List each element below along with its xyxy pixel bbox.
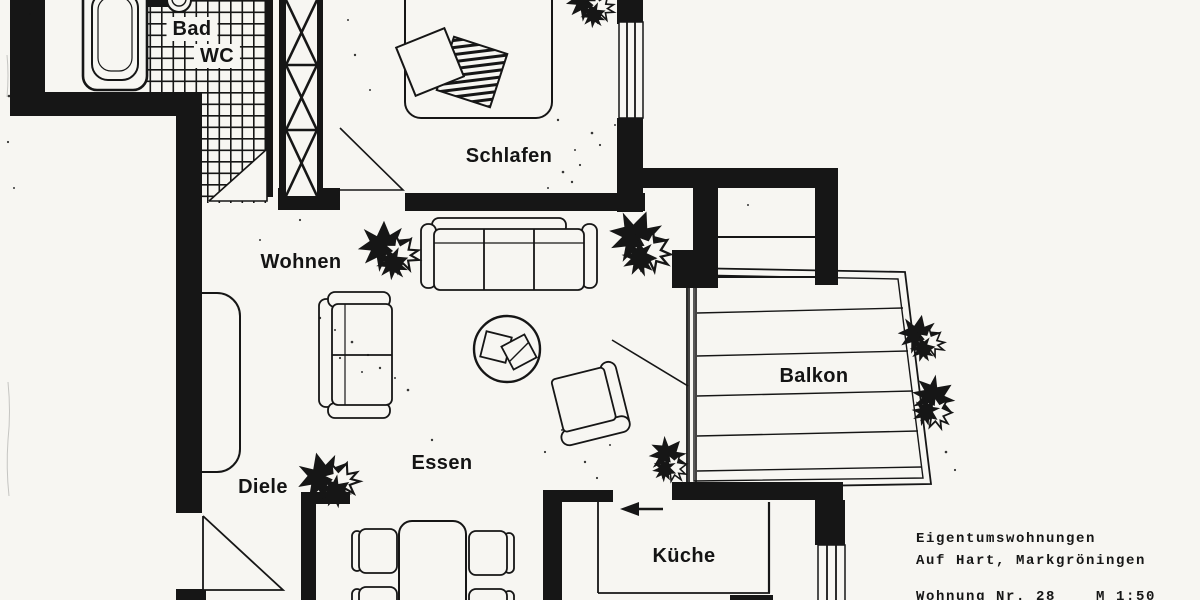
bed bbox=[396, 0, 552, 118]
dining-chair bbox=[352, 587, 397, 600]
room-label-diele: Diele bbox=[238, 477, 288, 497]
wall-essen-vertical bbox=[543, 490, 562, 600]
door-swing-schlafen bbox=[336, 128, 403, 190]
floor-plan-drawing bbox=[0, 0, 1200, 600]
wall-northeast bbox=[643, 168, 838, 188]
wall-diele-vertical bbox=[301, 492, 316, 600]
room-label-schlafen: Schlafen bbox=[466, 146, 553, 166]
storage-room bbox=[718, 237, 815, 277]
wall-schlafen-south bbox=[405, 193, 645, 211]
room-label-bad: Bad bbox=[167, 17, 218, 41]
title-line-2: Auf Hart, Markgröningen bbox=[916, 553, 1146, 569]
room-label-wohnen: Wohnen bbox=[261, 252, 342, 272]
wall-kitchen-bottom bbox=[730, 595, 773, 600]
room-label-balkon: Balkon bbox=[779, 366, 848, 386]
plant bbox=[894, 366, 973, 445]
wall-east-top bbox=[617, 0, 643, 24]
plant bbox=[358, 221, 426, 285]
coffee-table bbox=[474, 316, 540, 382]
kitchen-entry-arrow bbox=[620, 502, 663, 516]
wall-kitchen-east bbox=[815, 500, 845, 545]
title-line-3: Wohnung Nr. 28 M 1:50 bbox=[916, 589, 1156, 600]
door-swing-entry bbox=[203, 516, 283, 590]
plant bbox=[566, 0, 620, 32]
armchair bbox=[546, 360, 631, 447]
balcony-deck-planks bbox=[697, 308, 922, 471]
room-label-wc: WC bbox=[194, 44, 240, 68]
shaft-hatch bbox=[279, 0, 323, 196]
wall-left bbox=[176, 92, 202, 513]
wall-bath-bottom bbox=[40, 92, 178, 116]
wall-outer-left-top bbox=[10, 0, 45, 116]
dining-chair bbox=[469, 589, 514, 600]
door-swing-balcony bbox=[612, 340, 688, 386]
wall-left-bottom bbox=[176, 589, 206, 600]
wall-kitchen-north bbox=[672, 482, 843, 500]
title-line-1: Eigentumswohnungen bbox=[916, 531, 1096, 547]
window-schlafen bbox=[619, 22, 643, 118]
wall-block-foot bbox=[672, 250, 693, 288]
dining-chair bbox=[469, 531, 514, 575]
dining-table bbox=[399, 521, 466, 600]
floor-plan-scan: Bad WC Schlafen Wohnen Essen Diele Küche… bbox=[0, 0, 1200, 600]
room-label-essen: Essen bbox=[412, 453, 473, 473]
sofa-two-seat bbox=[319, 292, 392, 418]
room-label-kueche: Küche bbox=[652, 546, 715, 566]
plant bbox=[893, 311, 955, 370]
window-kitchen bbox=[818, 545, 845, 600]
dining-chair bbox=[352, 529, 397, 573]
sofa-three-seat bbox=[421, 218, 597, 290]
wall-block-right bbox=[815, 168, 838, 285]
wardrobe bbox=[201, 293, 240, 472]
wall-east-mid bbox=[617, 118, 643, 212]
bathtub bbox=[83, 0, 147, 90]
paper-edge-marks bbox=[7, 55, 10, 496]
